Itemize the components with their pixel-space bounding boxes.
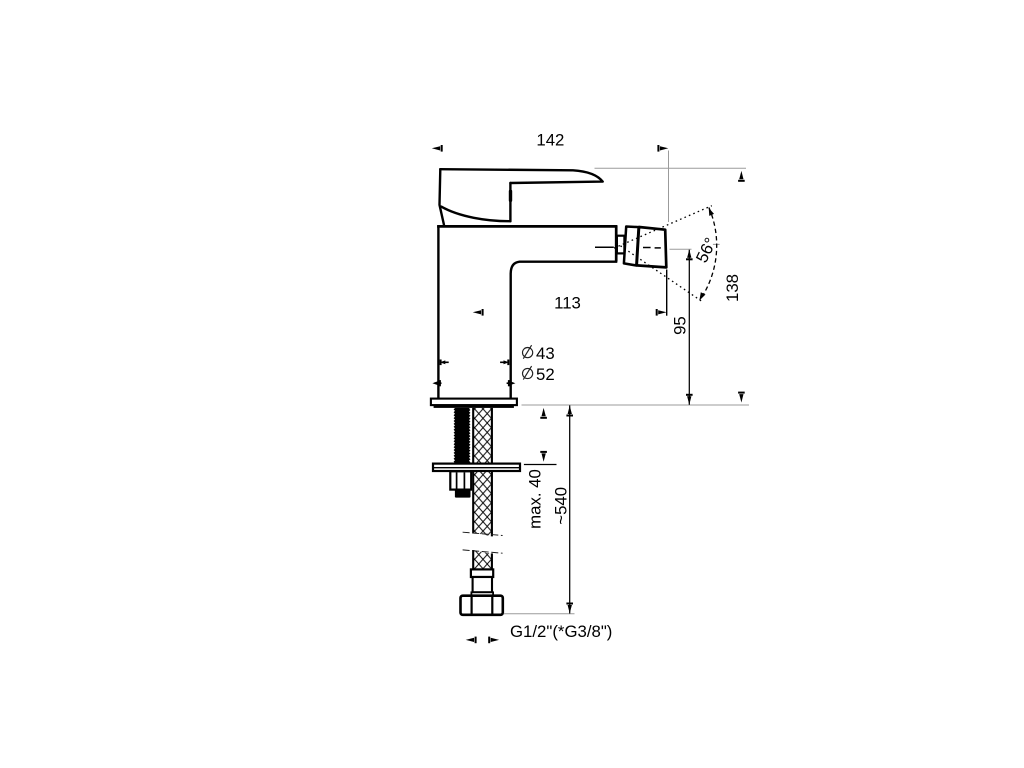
svg-text:~540: ~540 xyxy=(551,487,570,525)
svg-text:95: 95 xyxy=(671,316,690,335)
svg-text:113: 113 xyxy=(554,294,581,313)
svg-text:142: 142 xyxy=(536,130,564,149)
svg-text:max. 40: max. 40 xyxy=(526,469,545,529)
svg-text:52: 52 xyxy=(536,365,555,384)
svg-text:43: 43 xyxy=(536,344,555,363)
svg-text:138: 138 xyxy=(723,274,742,302)
svg-text:G1/2"(*G3/8"): G1/2"(*G3/8") xyxy=(510,622,612,641)
